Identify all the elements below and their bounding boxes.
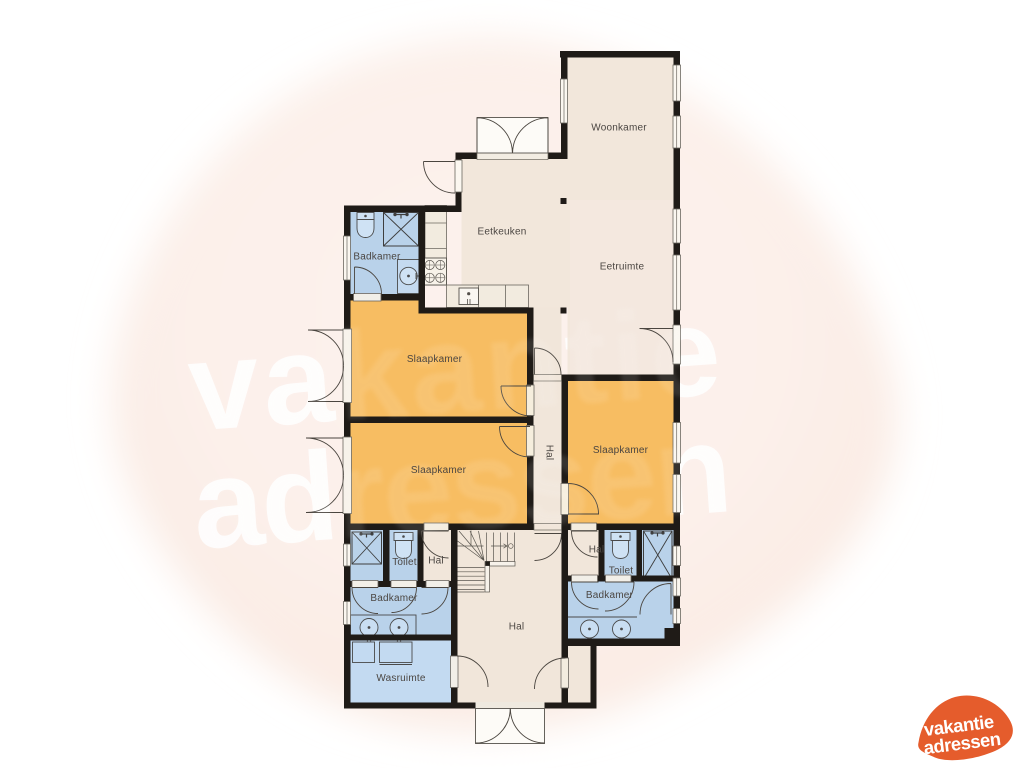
svg-text:Slaapkamer: Slaapkamer bbox=[411, 465, 467, 476]
svg-text:Badkamer: Badkamer bbox=[353, 252, 401, 263]
svg-text:Toilet: Toilet bbox=[392, 557, 417, 568]
svg-text:Slaapkamer: Slaapkamer bbox=[407, 354, 463, 365]
svg-text:Hal: Hal bbox=[428, 556, 444, 567]
svg-text:Hal: Hal bbox=[589, 545, 605, 556]
svg-text:Badkamer: Badkamer bbox=[370, 593, 418, 604]
svg-text:Woonkamer: Woonkamer bbox=[591, 123, 647, 134]
svg-text:Slaapkamer: Slaapkamer bbox=[593, 445, 649, 456]
svg-text:Hal: Hal bbox=[509, 622, 525, 633]
svg-text:Badkamer: Badkamer bbox=[586, 590, 634, 601]
svg-text:Eetruimte: Eetruimte bbox=[600, 262, 645, 273]
svg-text:Wasruimte: Wasruimte bbox=[376, 673, 425, 684]
svg-text:Hal: Hal bbox=[544, 445, 555, 461]
svg-text:Toilet: Toilet bbox=[609, 566, 634, 577]
svg-text:Eetkeuken: Eetkeuken bbox=[477, 227, 526, 238]
